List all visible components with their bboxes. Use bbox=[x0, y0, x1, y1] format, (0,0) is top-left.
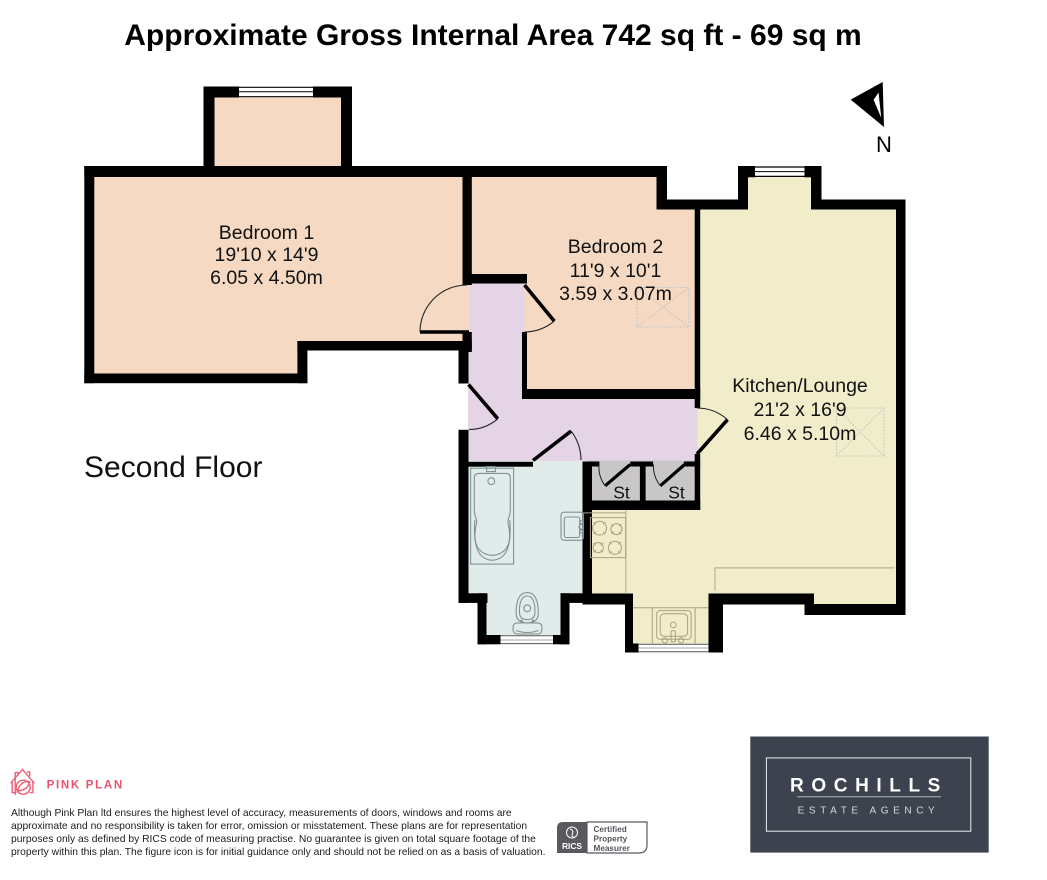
svg-text:19'10 x 14'9: 19'10 x 14'9 bbox=[215, 244, 319, 266]
svg-text:21'2 x 16'9: 21'2 x 16'9 bbox=[753, 399, 846, 421]
svg-text:Property: Property bbox=[594, 835, 628, 844]
svg-text:6.05 x 4.50m: 6.05 x 4.50m bbox=[210, 267, 323, 289]
svg-text:ROCHILLS: ROCHILLS bbox=[790, 776, 948, 797]
svg-text:N: N bbox=[876, 132, 892, 157]
svg-text:Although Pink Plan ltd ensures: Although Pink Plan ltd ensures the highe… bbox=[11, 808, 512, 819]
svg-text:Approximate Gross Internal Are: Approximate Gross Internal Area 742 sq f… bbox=[124, 19, 861, 52]
svg-text:RICS: RICS bbox=[562, 841, 582, 851]
svg-text:approximate and no responsibil: approximate and no responsibility is tak… bbox=[11, 821, 527, 832]
svg-text:Measurer: Measurer bbox=[594, 844, 631, 853]
svg-text:Bedroom 1: Bedroom 1 bbox=[219, 222, 314, 244]
svg-text:Certified: Certified bbox=[594, 825, 627, 834]
svg-text:Bedroom 2: Bedroom 2 bbox=[568, 236, 663, 258]
svg-text:6.46 x 5.10m: 6.46 x 5.10m bbox=[744, 423, 857, 445]
svg-text:purposes only as defined by RI: purposes only as defined by RICS code of… bbox=[11, 834, 536, 845]
svg-text:ESTATE AGENCY: ESTATE AGENCY bbox=[798, 806, 940, 817]
svg-text:Kitchen/Lounge: Kitchen/Lounge bbox=[732, 375, 868, 397]
svg-text:St: St bbox=[668, 483, 685, 503]
svg-text:11'9 x 10'1: 11'9 x 10'1 bbox=[570, 260, 662, 282]
svg-text:St: St bbox=[613, 483, 630, 503]
svg-text:PINK PLAN: PINK PLAN bbox=[47, 780, 124, 792]
svg-text:property within this plan. The: property within this plan. The figure ic… bbox=[11, 847, 545, 858]
svg-text:Second Floor: Second Floor bbox=[84, 451, 262, 484]
svg-text:3.59 x 3.07m: 3.59 x 3.07m bbox=[559, 283, 672, 305]
